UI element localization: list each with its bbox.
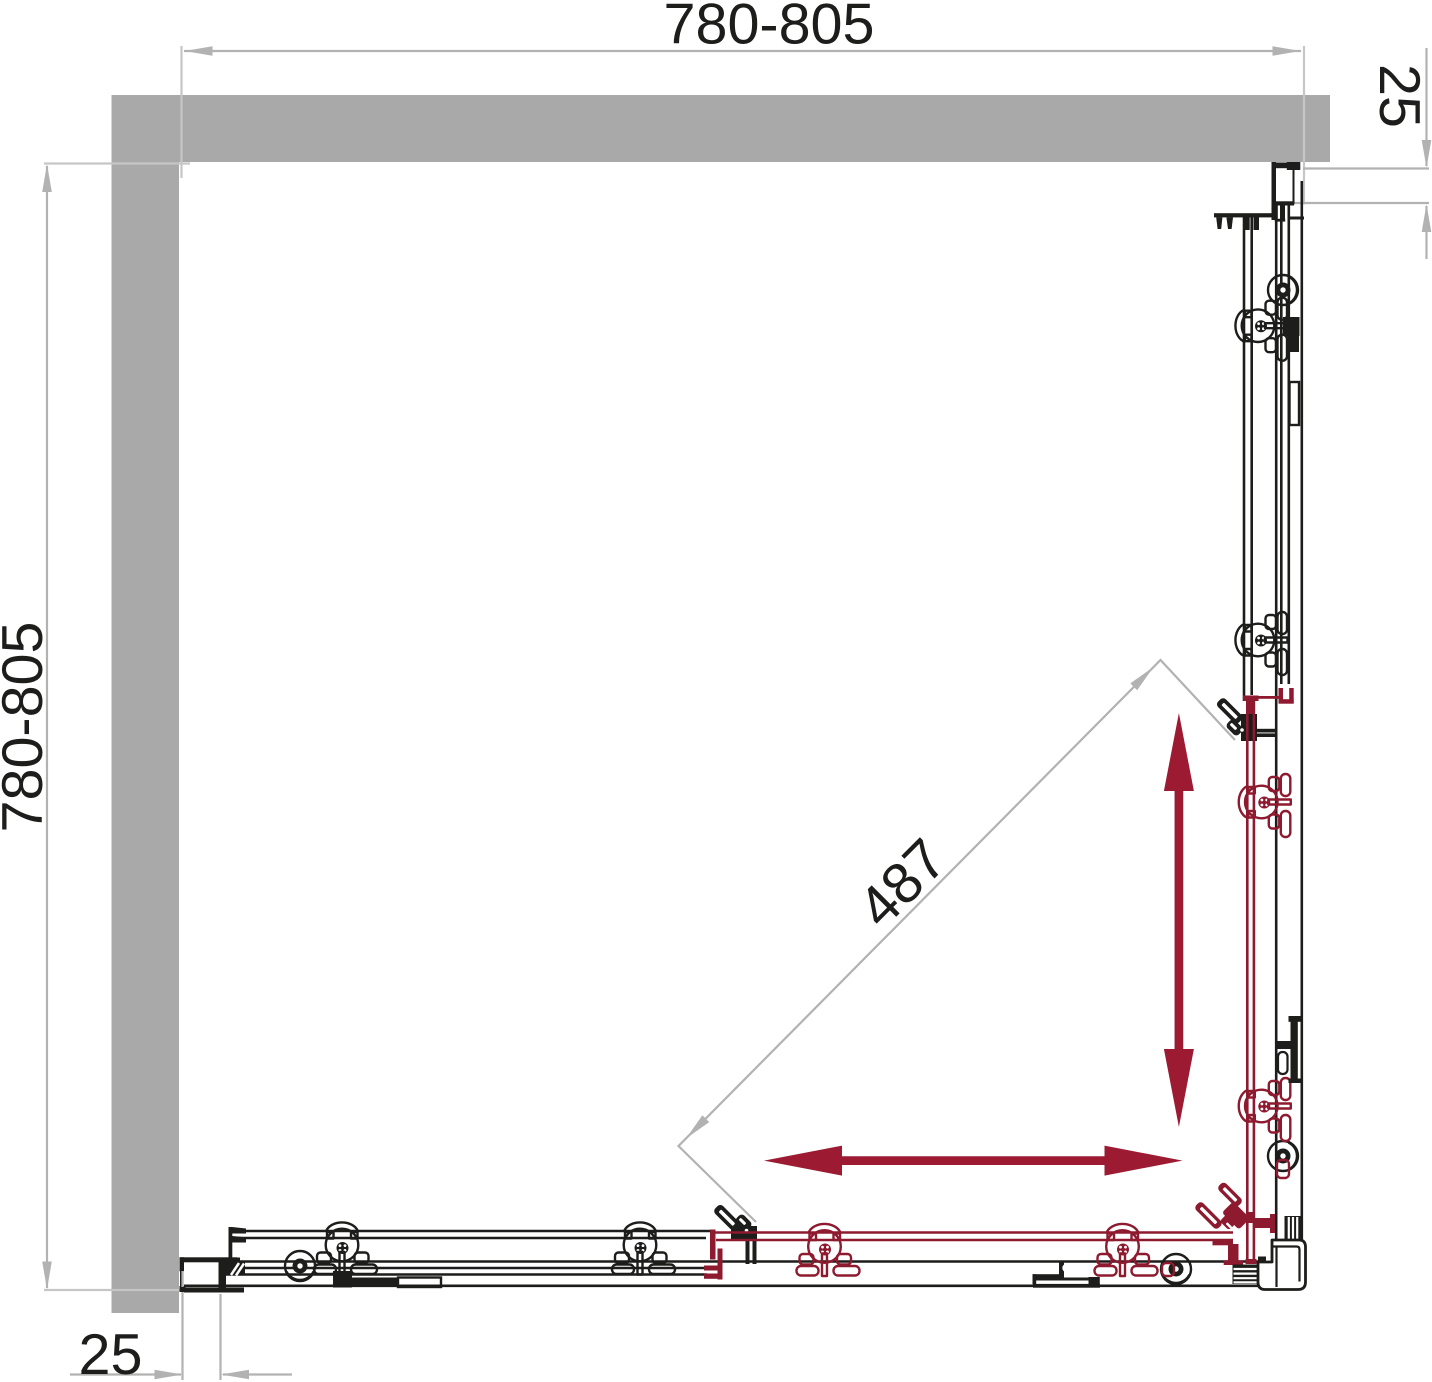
svg-text:25: 25 [1367, 64, 1431, 128]
svg-text:780-805: 780-805 [663, 0, 874, 57]
svg-text:780-805: 780-805 [0, 621, 55, 832]
svg-text:25: 25 [79, 1323, 143, 1382]
